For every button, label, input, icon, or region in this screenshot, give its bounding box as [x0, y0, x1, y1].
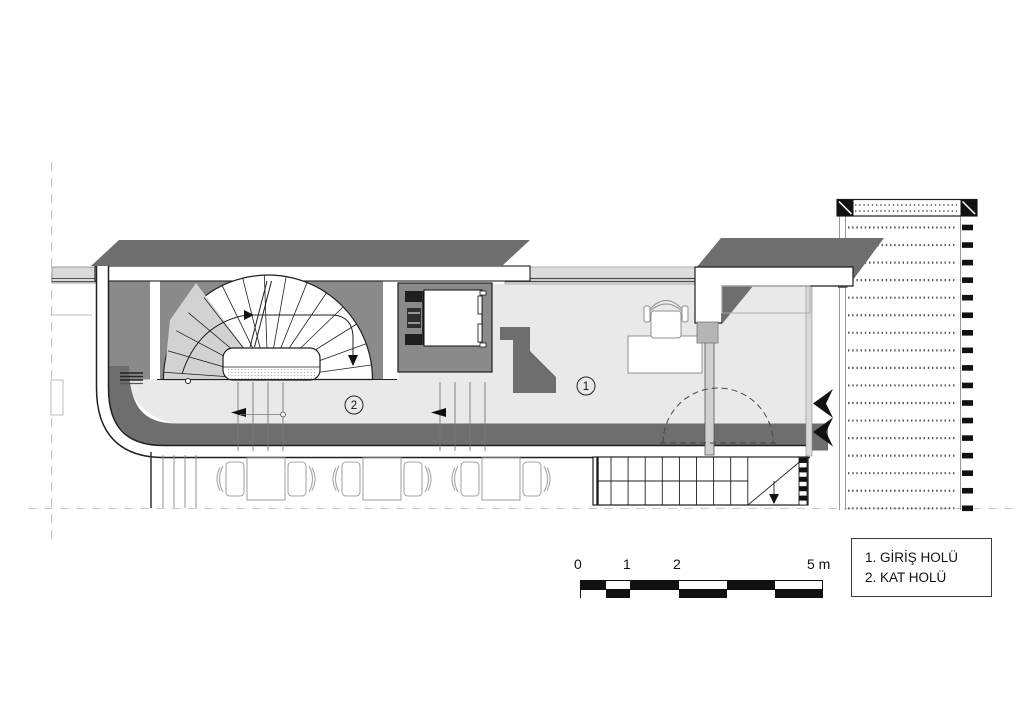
pergola-bracket [962, 435, 973, 441]
stair-rail-hatch [799, 458, 807, 505]
pergola-bracket [962, 260, 973, 266]
chair-back-arc [336, 466, 340, 492]
table-group [217, 458, 315, 500]
scale-tick-1: 1 [623, 556, 631, 572]
left-beam [52, 267, 97, 283]
room-number-2: 2 [351, 400, 357, 412]
room-marker-1: 1 [577, 377, 595, 395]
table [247, 458, 285, 500]
floor-plan-page: 1 2 [0, 0, 1024, 724]
entry-arrow-icon [813, 389, 833, 418]
pergola-bracket [962, 242, 973, 248]
chair-left [226, 462, 244, 496]
pergola-bracket [962, 383, 973, 389]
elevator-door-gear [405, 334, 422, 345]
pergola-bracket [962, 365, 973, 371]
external-stair [593, 457, 808, 505]
elevator [398, 283, 492, 372]
top-wall-band [95, 266, 530, 281]
table-group [452, 458, 550, 500]
chair-right [523, 462, 541, 496]
table-group [333, 458, 431, 500]
wall-pier [150, 281, 160, 380]
pergola-bracket [962, 277, 973, 283]
elevator-car [424, 290, 482, 346]
scale-bar: 0 1 2 5 m [570, 556, 850, 604]
chair-right [404, 462, 422, 496]
scale-tick-2: 2 [673, 556, 681, 572]
left-margin-box [51, 380, 63, 415]
hall-right-wall [806, 284, 812, 456]
rail-hatch-block [799, 486, 807, 491]
rail-hatch-block [799, 458, 807, 463]
scale-tick-0: 0 [574, 556, 582, 572]
rail-hatch-block [799, 496, 807, 501]
chair-back-arc [309, 466, 313, 492]
glass-facade-band [505, 267, 697, 284]
table [363, 458, 401, 500]
pergola-louvers [848, 228, 957, 509]
chair-left [461, 462, 479, 496]
pergola-bracket [962, 330, 973, 336]
elevator-door-motor [407, 308, 421, 328]
pergola-bracket [962, 488, 973, 494]
pergola-bracket [962, 400, 973, 406]
terrace-furniture [217, 458, 550, 500]
partition-wall [705, 330, 714, 455]
pergola-bracket [962, 312, 973, 318]
pergola-bracket [962, 225, 973, 231]
legend-item-2: 2. KAT HOLÜ [865, 568, 991, 588]
canopy-column [697, 322, 718, 343]
pergola-bracket [962, 418, 973, 424]
pergola-beam [837, 200, 977, 217]
chair-back-arc [455, 466, 459, 492]
terrace-steps [151, 452, 196, 508]
pergola-bracket [962, 348, 973, 354]
table [482, 458, 520, 500]
pergola-bracket [962, 295, 973, 301]
scale-bar-graphic [580, 580, 823, 598]
roof-slab-shadow [91, 240, 530, 266]
chair-back-arc [544, 466, 548, 492]
pergola-bracket [962, 506, 973, 512]
pergola-bracket [962, 470, 973, 476]
floor-plan-svg: 1 2 [0, 0, 1024, 724]
elevator-door-gear [405, 291, 422, 302]
room-marker-2: 2 [345, 396, 363, 414]
legend-item-1: 1. GİRİŞ HOLÜ [865, 548, 991, 568]
pergola-brackets [962, 225, 973, 511]
rail-hatch-block [799, 467, 807, 472]
room-number-1: 1 [583, 381, 589, 393]
legend-box: 1. GİRİŞ HOLÜ 2. KAT HOLÜ [851, 538, 992, 597]
pergola-bracket [962, 453, 973, 459]
rail-hatch-block [799, 477, 807, 482]
chair-right [288, 462, 306, 496]
chair-back-arc [220, 466, 224, 492]
scale-tick-5m: 5 m [807, 556, 830, 572]
chair-left [342, 462, 360, 496]
wall-pier [383, 281, 399, 380]
chair-back-arc [425, 466, 429, 492]
